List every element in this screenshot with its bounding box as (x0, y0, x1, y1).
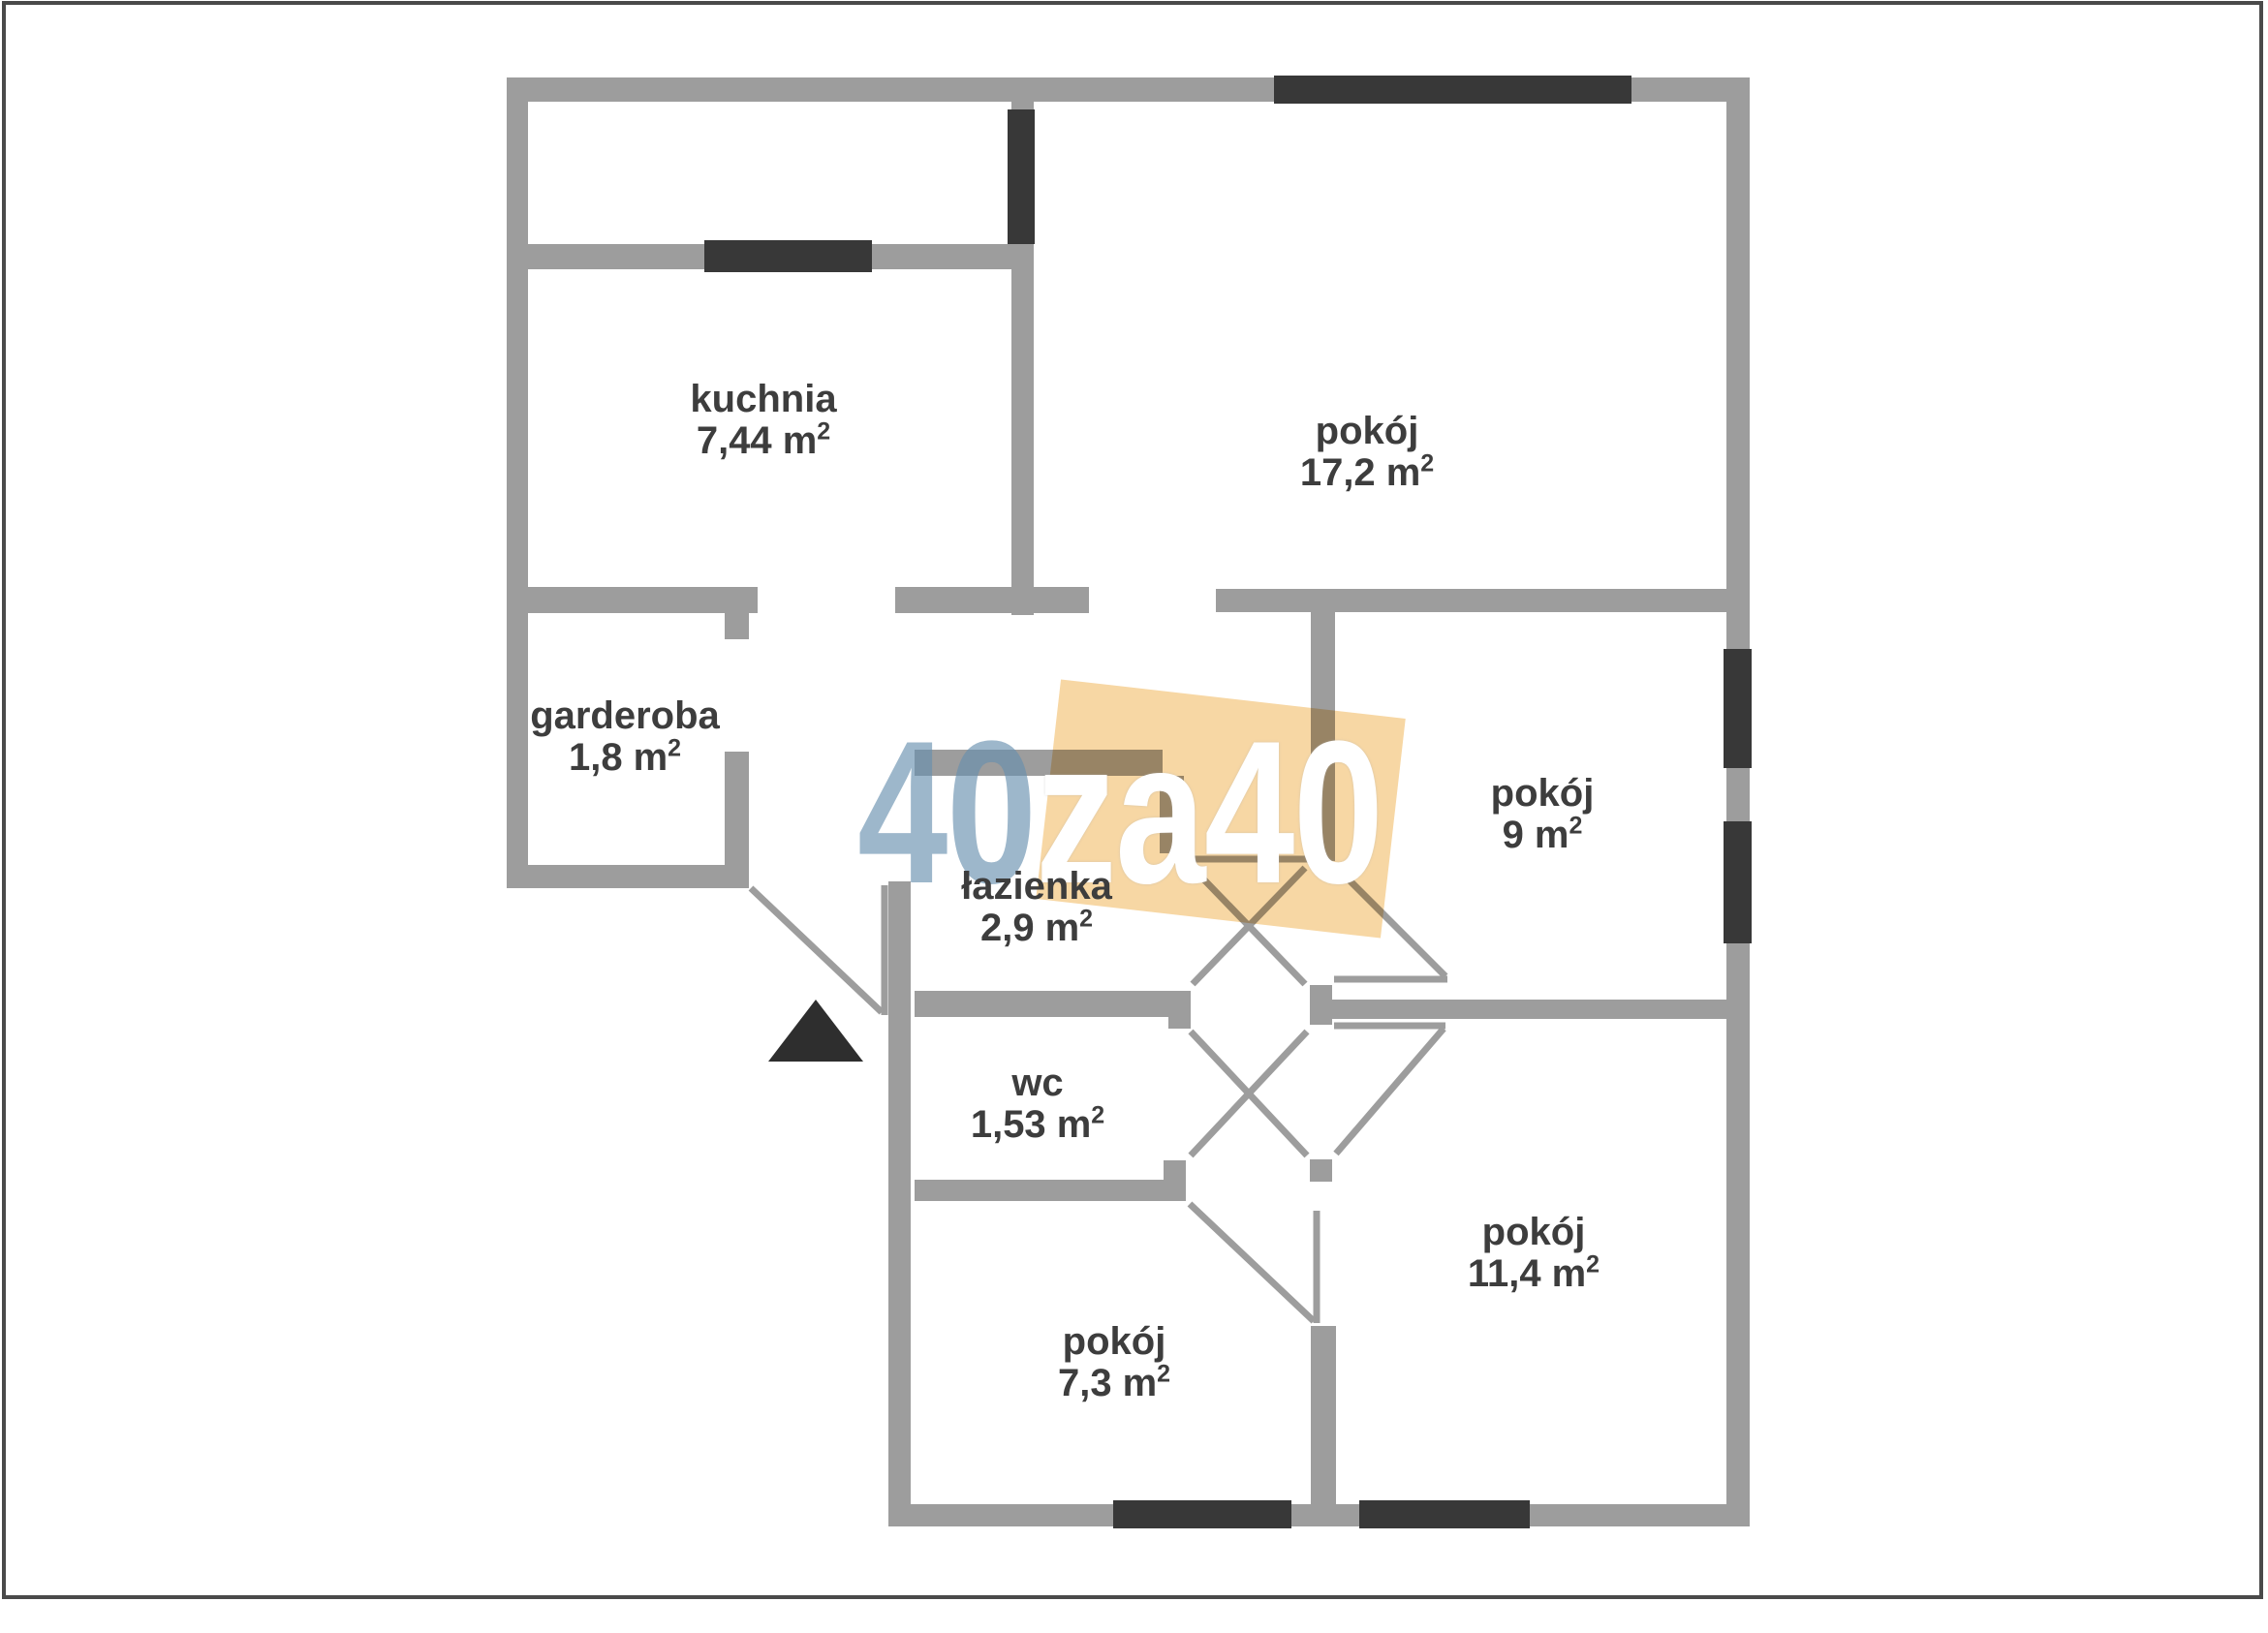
room-name: pokój (1388, 1212, 1679, 1253)
room-label-pokoj-7: pokój 7,3m2 (969, 1321, 1259, 1404)
room-name: pokój (969, 1321, 1259, 1363)
room-name: wc (892, 1063, 1183, 1104)
room-name: łazienka (891, 866, 1182, 908)
room-label-pokoj-9: pokój 9m2 (1397, 773, 1688, 856)
room-area: 1,53m2 (892, 1104, 1183, 1146)
room-label-garderoba: garderoba 1,8m2 (480, 695, 770, 779)
room-name: pokój (1397, 773, 1688, 815)
room-area: 1,8m2 (480, 737, 770, 779)
room-label-pokoj-11: pokój 11,4m2 (1388, 1212, 1679, 1295)
room-area: 9m2 (1397, 815, 1688, 856)
room-label-lazienka: łazienka 2,9m2 (891, 866, 1182, 949)
door-swing-line (1336, 1029, 1444, 1154)
room-name: garderoba (480, 695, 770, 737)
room-label-pokoj-17: pokój 17,2m2 (1222, 411, 1512, 494)
room-area: 7,3m2 (969, 1363, 1259, 1404)
room-name: pokój (1222, 411, 1512, 452)
room-label-wc: wc 1,53m2 (892, 1063, 1183, 1146)
room-area: 11,4m2 (1388, 1253, 1679, 1295)
room-area: 17,2m2 (1222, 452, 1512, 494)
entrance-triangle-icon (768, 1000, 863, 1062)
room-name: kuchnia (618, 379, 909, 420)
room-area: 7,44m2 (618, 420, 909, 462)
room-label-kuchnia: kuchnia 7,44m2 (618, 379, 909, 462)
door-swing-line (1190, 1204, 1314, 1321)
floorplan-canvas: 40za40 kuchnia 7,44m2 pokój 17,2m2 garde… (0, 0, 2268, 1633)
room-area: 2,9m2 (891, 908, 1182, 949)
